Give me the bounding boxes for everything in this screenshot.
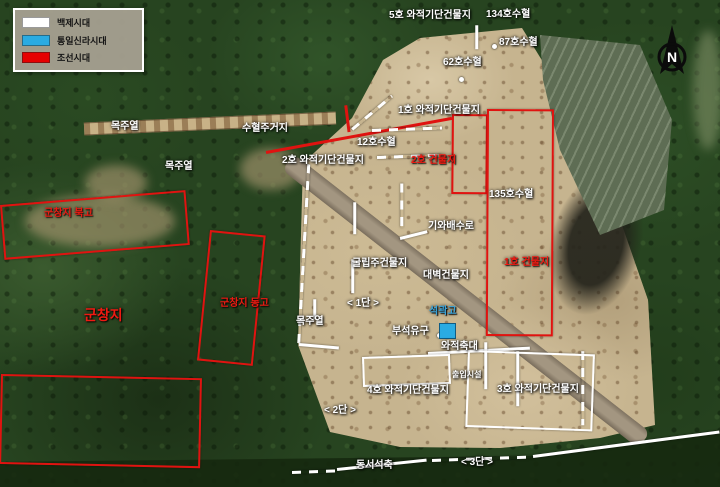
north-arrow-graphic: N [650,24,694,90]
site-label: 목주열 [296,316,324,328]
white-line [476,25,479,49]
site-label: 1호 건물지 [504,257,549,269]
site-label: 135호수혈 [489,189,533,201]
site-label: < 1단 > [347,298,379,310]
white-line [299,343,339,349]
red-boundary-line [345,105,351,132]
site-label: 87호수혈 [499,37,538,49]
period-legend: 백제시대 통일신라시대 조선시대 [13,8,144,72]
white-dashed-line [401,183,404,227]
site-label: 대벽건물지 [423,270,469,282]
joseon-color-swatch [22,52,50,63]
red-period-box [486,109,554,336]
site-label: 134호수혈 [486,9,530,21]
white-dashed-line [372,127,442,132]
site-label: 목주열 [165,161,193,173]
site-label: 4호 와적기단건물지 [367,385,449,397]
site-label: 석곽고 [429,306,457,318]
legend-row-baekje: 백제시대 [22,16,135,29]
site-label: 5호 와적기단건물지 [389,10,471,22]
red-period-box [451,114,488,194]
site-label: 2호 와적기단건물지 [282,155,364,167]
legend-row-unified-silla: 통일신라시대 [22,34,135,47]
north-arrow: N [650,24,694,90]
aerial-site-figure: 5호 와적기단건물지134호수혈87호수혈62호수혈목주열수혈주거지목주열1호 … [0,0,720,487]
unified-silla-feature [439,323,456,339]
site-label: 군창지 동고 [220,298,269,310]
site-label: 와적축대 [441,341,478,353]
site-label: 군창지 북고 [44,208,93,220]
north-label: N [667,49,677,65]
baekje-color-swatch [22,17,50,28]
site-label: 목주열 [111,121,139,133]
marker-dot [459,77,464,82]
site-label: 12호수혈 [357,137,396,149]
site-label: 62호수혈 [443,57,482,69]
site-label: 동서석축 [356,460,393,472]
white-line [400,230,428,239]
site-label: 굴립주건물지 [352,258,407,270]
site-label: 2호 건물지 [411,155,456,167]
site-label: < 2단 > [324,405,356,417]
building-outline [362,354,451,387]
white-dashed-line [292,469,337,473]
legend-label: 백제시대 [57,16,90,29]
site-label: 수혈주거지 [242,123,288,135]
site-label: 부석유구 [392,326,429,338]
legend-label: 조선시대 [57,51,90,64]
white-line [354,202,357,234]
unified-silla-color-swatch [22,35,50,46]
site-label: < 3단 > [461,457,493,469]
white-line [533,430,720,457]
red-period-box [0,374,202,468]
annotation-layer: 5호 와적기단건물지134호수혈87호수혈62호수혈목주열수혈주거지목주열1호 … [0,0,720,487]
site-label: 3호 와적기단건물지 [497,384,579,396]
legend-row-joseon: 조선시대 [22,51,135,64]
legend-label: 통일신라시대 [57,34,107,47]
site-label: 출입시설 [452,370,481,380]
red-period-box [0,190,190,260]
site-label: 1호 와적기단건물지 [398,105,480,117]
site-label: 기와배수로 [428,221,474,233]
marker-dot [492,44,497,49]
site-label: 군창지 [84,307,123,324]
white-dashed-line [351,95,392,130]
